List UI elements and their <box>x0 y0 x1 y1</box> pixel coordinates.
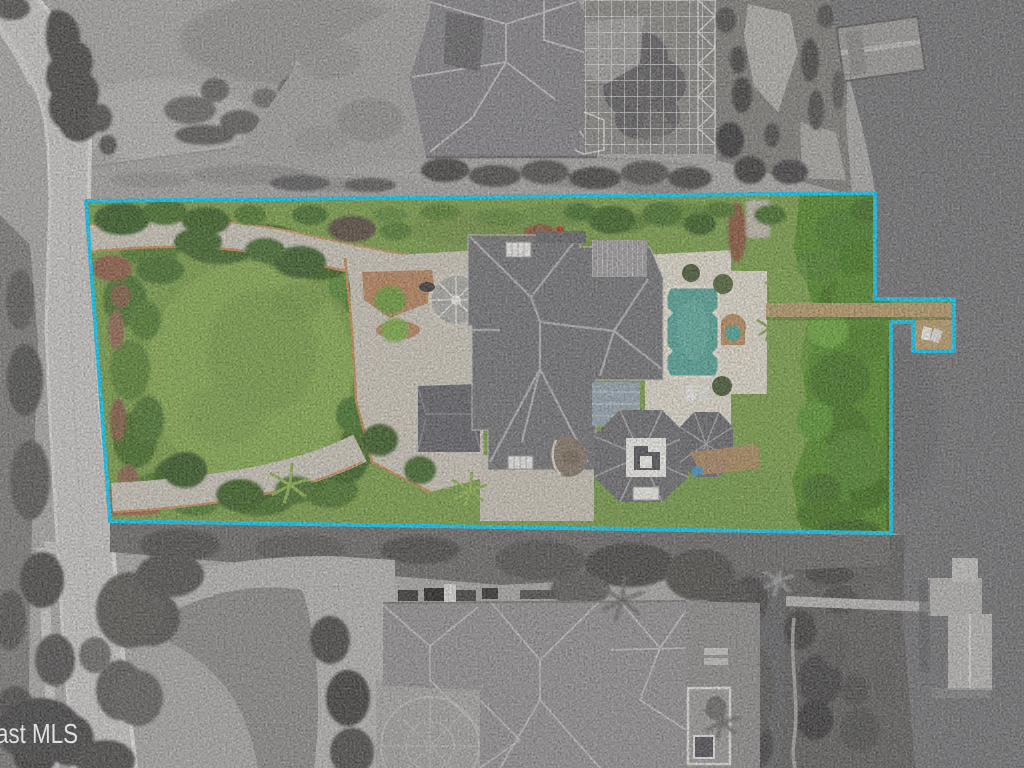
svg-text:ast MLS: ast MLS <box>0 718 78 749</box>
